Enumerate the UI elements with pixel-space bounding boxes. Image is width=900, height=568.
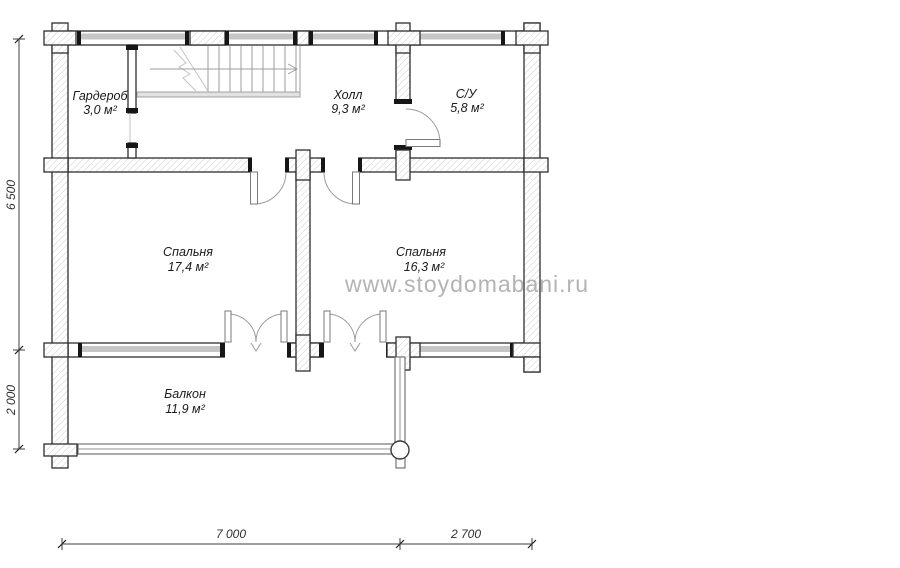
room-label-hall: Холл 9,3 м² [331,88,365,116]
dimension-bottom-horizontal: 7 000 2 700 [58,527,536,550]
balcony-post [391,441,409,459]
window-mullion [297,31,309,45]
door-bathroom [406,109,440,147]
room-area: 17,4 м² [168,260,209,274]
wall-top-exterior [68,31,524,45]
door-opening-balcony-left [225,342,287,358]
dimension-left-vertical: 6 500 2 000 [4,35,25,453]
room-area: 5,8 м² [450,101,484,115]
room-label-bathroom: С/У 5,8 м² [450,87,484,115]
door-bedroom-right [324,172,360,204]
door-opening-bathroom [395,104,411,145]
room-label-bedroom-right: Спальня 16,3 м² [396,245,446,274]
balcony-railing [78,357,409,468]
dimension-label-2000: 2 000 [4,385,18,416]
room-area: 9,3 м² [331,102,365,116]
stairs [137,46,300,97]
room-name: Гардероб [72,89,128,103]
wall-between-bedrooms [296,172,310,343]
room-area: 11,9 м² [165,402,205,416]
stair-break-zigzag [174,50,196,91]
door-opening-balcony-right [324,342,386,358]
door-bedroom-left [251,172,287,204]
room-name: С/У [456,87,479,101]
dimension-label-7000: 7 000 [216,527,246,541]
room-name: Холл [333,88,363,102]
dimension-label-6500: 6 500 [4,180,18,210]
watermark: www.stoydomabani.ru [344,271,589,297]
room-name: Спальня [396,245,446,259]
stair-direction-arrow [150,64,297,74]
room-name: Балкон [164,387,206,401]
floor-plan-canvas: 6 500 2 000 7 000 2 700 Гардероб 3,0 м² … [0,0,900,568]
wall-right-exterior [524,23,540,372]
room-label-wardrobe: Гардероб 3,0 м² [72,89,128,117]
floor-plan-page: 6 500 2 000 7 000 2 700 Гардероб 3,0 м² … [0,0,900,568]
wall-left-exterior [52,31,68,468]
room-area: 3,0 м² [83,103,117,117]
wall-wardrobe-partition [126,45,138,158]
room-label-bedroom-left: Спальня 17,4 м² [163,245,213,274]
wall-pier [190,31,225,45]
dimension-label-2700: 2 700 [450,527,481,541]
room-name: Спальня [163,245,213,259]
room-label-balcony: Балкон 11,9 м² [164,387,206,416]
door-opening-bedroom-right [325,157,358,173]
door-opening-bedroom-left [252,157,285,173]
